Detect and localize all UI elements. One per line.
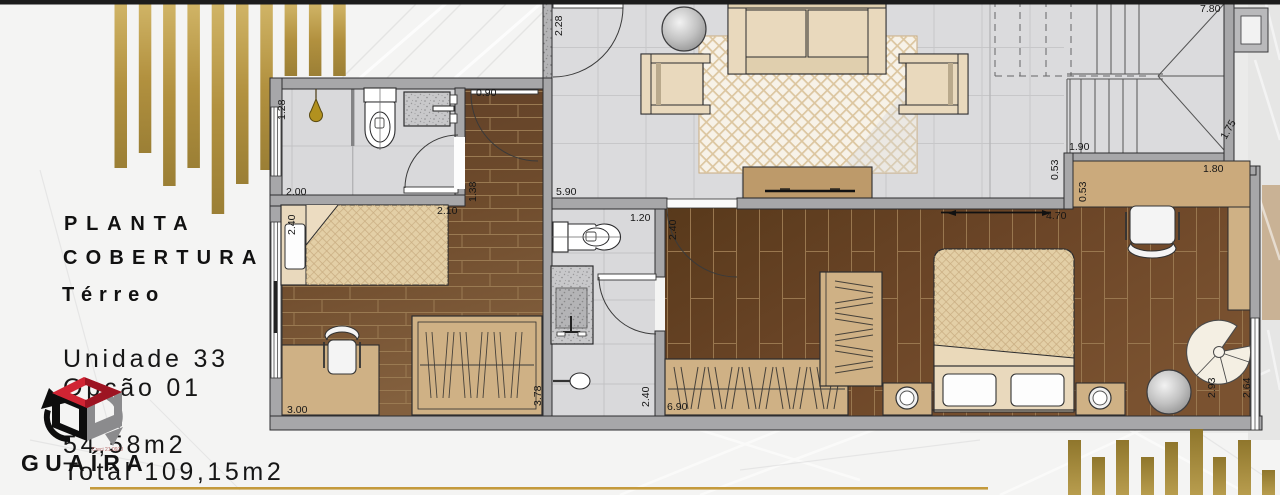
svg-text:1.38: 1.38 <box>467 181 479 202</box>
svg-text:1.90: 1.90 <box>1069 141 1090 153</box>
svg-text:2.40: 2.40 <box>667 219 679 240</box>
svg-text:4.70: 4.70 <box>1046 210 1067 222</box>
svg-text:0.53: 0.53 <box>1077 181 1089 202</box>
svg-text:2.40: 2.40 <box>640 386 652 407</box>
svg-text:6.90: 6.90 <box>667 401 688 413</box>
svg-text:5.90: 5.90 <box>556 186 577 198</box>
svg-text:1.28: 1.28 <box>276 99 288 120</box>
svg-text:1.80: 1.80 <box>1203 163 1224 175</box>
svg-text:2.10: 2.10 <box>437 205 458 217</box>
svg-text:0.53: 0.53 <box>1049 159 1061 180</box>
svg-text:2.93: 2.93 <box>1206 377 1218 398</box>
svg-text:2.40: 2.40 <box>286 214 298 235</box>
svg-text:3.78: 3.78 <box>532 385 544 406</box>
svg-text:2.00: 2.00 <box>286 186 307 198</box>
svg-text:3.00: 3.00 <box>287 404 308 416</box>
svg-text:2.64: 2.64 <box>1241 377 1253 398</box>
svg-text:2.28: 2.28 <box>553 15 565 36</box>
svg-text:0.90: 0.90 <box>476 87 497 99</box>
svg-text:7.80: 7.80 <box>1200 3 1221 15</box>
svg-text:1.20: 1.20 <box>630 212 651 224</box>
